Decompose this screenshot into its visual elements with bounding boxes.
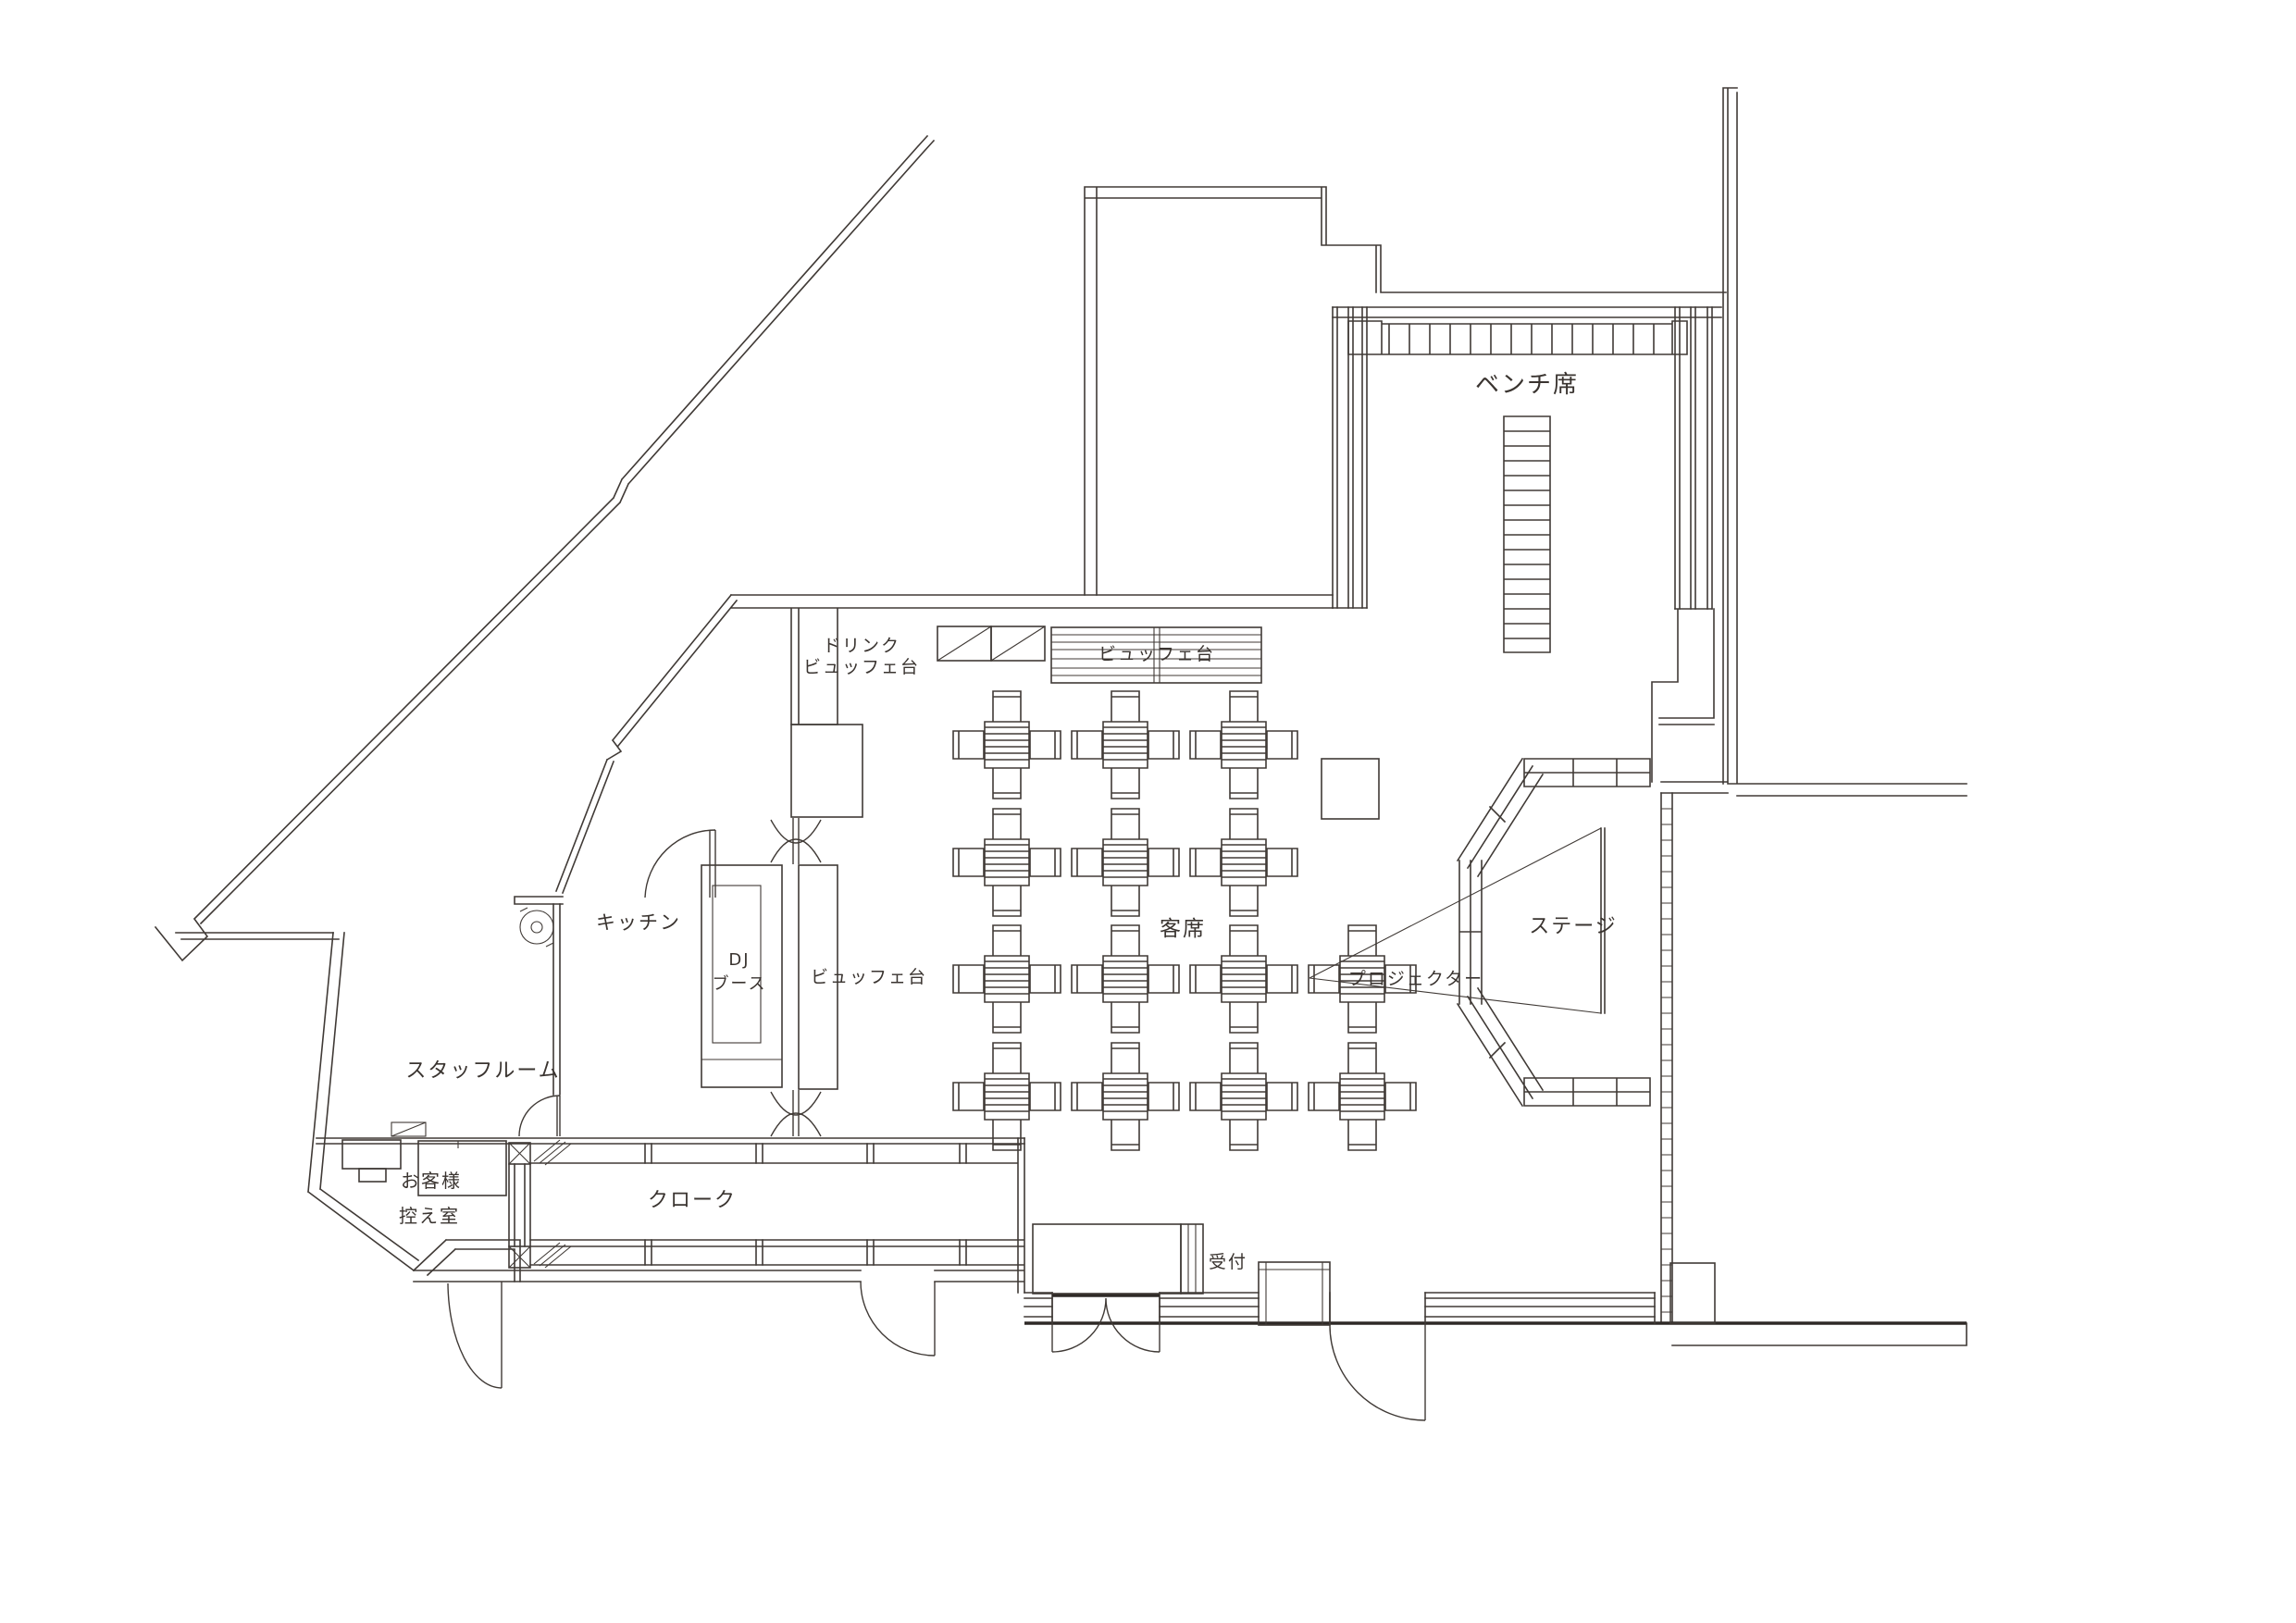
guest-table: [1072, 809, 1179, 916]
waiting-entry-door: [448, 1282, 502, 1388]
bench-room-walls: [1085, 88, 1967, 796]
entrance-wall: [1024, 1224, 1967, 1420]
guest-table: [1072, 925, 1179, 1033]
guest-table: [1190, 1043, 1297, 1150]
utility-box-right: [1670, 1263, 1715, 1323]
floor-plan-drawing: ベンチ席 ドリンク ビュッフェ台 ビュッフェ台 キッチン DJ ブース ビュッフ…: [0, 0, 2296, 1623]
label-guest-seats: 客席: [1160, 917, 1206, 941]
label-waiting-1: お客様: [401, 1170, 462, 1192]
kitchen-walls: [519, 904, 560, 1136]
label-buffet-top: ビュッフェ台: [1098, 644, 1215, 664]
label-bench-seats: ベンチ席: [1475, 371, 1579, 399]
cloak-room: [414, 1138, 1024, 1356]
label-projector: プロジェクター: [1348, 969, 1483, 989]
guest-table: [1309, 1043, 1416, 1150]
stage-area: [1309, 759, 1672, 1323]
guest-table: [953, 925, 1061, 1033]
equipment-square: [1322, 759, 1379, 819]
outer-diagonal-walls: [155, 136, 934, 960]
kitchen-box: [791, 725, 863, 817]
guest-table: [953, 691, 1061, 799]
entrance-side-door: [1330, 1323, 1425, 1420]
waiting-room-walls: [308, 933, 1024, 1388]
waiting-chair: [359, 1169, 386, 1182]
label-waiting-2: 控え室: [399, 1205, 460, 1227]
guest-table: [1072, 691, 1179, 799]
label-stage: ステージ: [1529, 915, 1618, 938]
hall-top-wall: [731, 595, 1333, 608]
label-buffet-side: ビュッフェ台: [811, 967, 927, 987]
utility-box-left: [1259, 1262, 1330, 1325]
label-kitchen: キッチン: [596, 911, 681, 934]
pass-door-bottom: [771, 1090, 821, 1136]
label-cloak: クローク: [648, 1189, 737, 1212]
guest-table: [1072, 1043, 1179, 1150]
guest-table: [1190, 691, 1297, 799]
dj-buffet-assembly: [645, 609, 863, 1136]
guest-table: [953, 809, 1061, 916]
label-dj-2: ブース: [712, 973, 766, 994]
staff-room-door: [519, 1096, 560, 1136]
label-staff-room: スタッフルーム: [405, 1059, 560, 1083]
pass-door-top: [771, 818, 821, 864]
bench-center-bench: [1504, 416, 1550, 652]
label-reception: 受付: [1209, 1252, 1247, 1272]
guest-table: [1190, 925, 1297, 1033]
guest-table: [1190, 809, 1297, 916]
entrance-double-door: [1052, 1298, 1160, 1352]
cloak-door: [861, 1282, 935, 1356]
floor-plan-page: ベンチ席 ドリンク ビュッフェ台 ビュッフェ台 キッチン DJ ブース ビュッフ…: [0, 0, 2296, 1623]
bench-wall-bench: [1348, 321, 1687, 354]
column-x-top: [509, 1143, 530, 1164]
label-dj-1: DJ: [728, 950, 750, 970]
stage-right-wall: [1661, 793, 1672, 1323]
labels-layer: ベンチ席 ドリンク ビュッフェ台 ビュッフェ台 キッチン DJ ブース ビュッフ…: [399, 371, 1618, 1272]
label-drink-buffet-1: ドリンク: [823, 636, 900, 656]
label-drink-buffet-2: ビュッフェ台: [803, 657, 920, 677]
entry-vestibule: [414, 1240, 520, 1282]
kitchen-door: [645, 830, 715, 898]
guest-table: [953, 1043, 1061, 1150]
reception-desk: [1033, 1224, 1203, 1294]
exhaust-fan-icon: [520, 908, 553, 947]
